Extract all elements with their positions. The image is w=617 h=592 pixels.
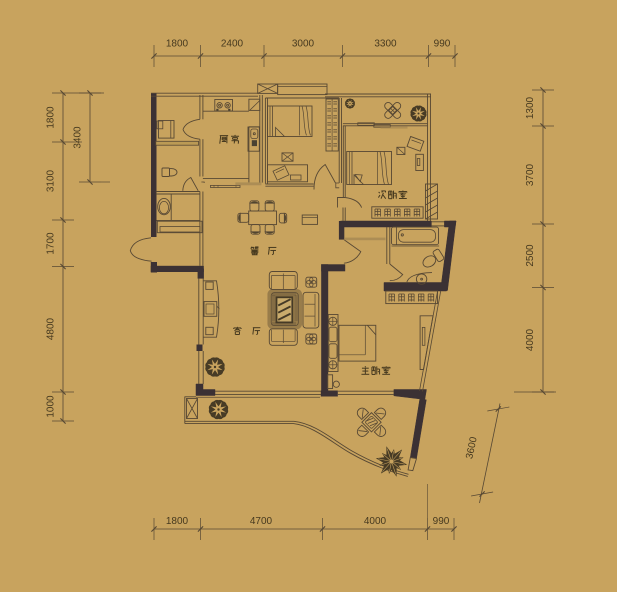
svg-text:4000: 4000 [364,516,387,527]
svg-text:1000: 1000 [46,395,57,418]
svg-text:1700: 1700 [46,232,57,255]
svg-text:1800: 1800 [46,106,57,129]
svg-text:3700: 3700 [525,163,536,186]
svg-text:2400: 2400 [221,39,244,50]
svg-text:990: 990 [434,39,451,50]
svg-text:3100: 3100 [46,169,57,192]
svg-text:2500: 2500 [525,244,536,267]
svg-text:3300: 3300 [374,39,397,50]
svg-text:4700: 4700 [250,516,273,527]
svg-text:1800: 1800 [166,39,189,50]
svg-text:1300: 1300 [525,96,536,119]
svg-text:1800: 1800 [166,516,189,527]
svg-text:3000: 3000 [292,39,315,50]
svg-text:3400: 3400 [73,126,84,149]
svg-text:4800: 4800 [46,317,57,340]
svg-text:990: 990 [433,516,450,527]
svg-text:4000: 4000 [525,328,536,351]
